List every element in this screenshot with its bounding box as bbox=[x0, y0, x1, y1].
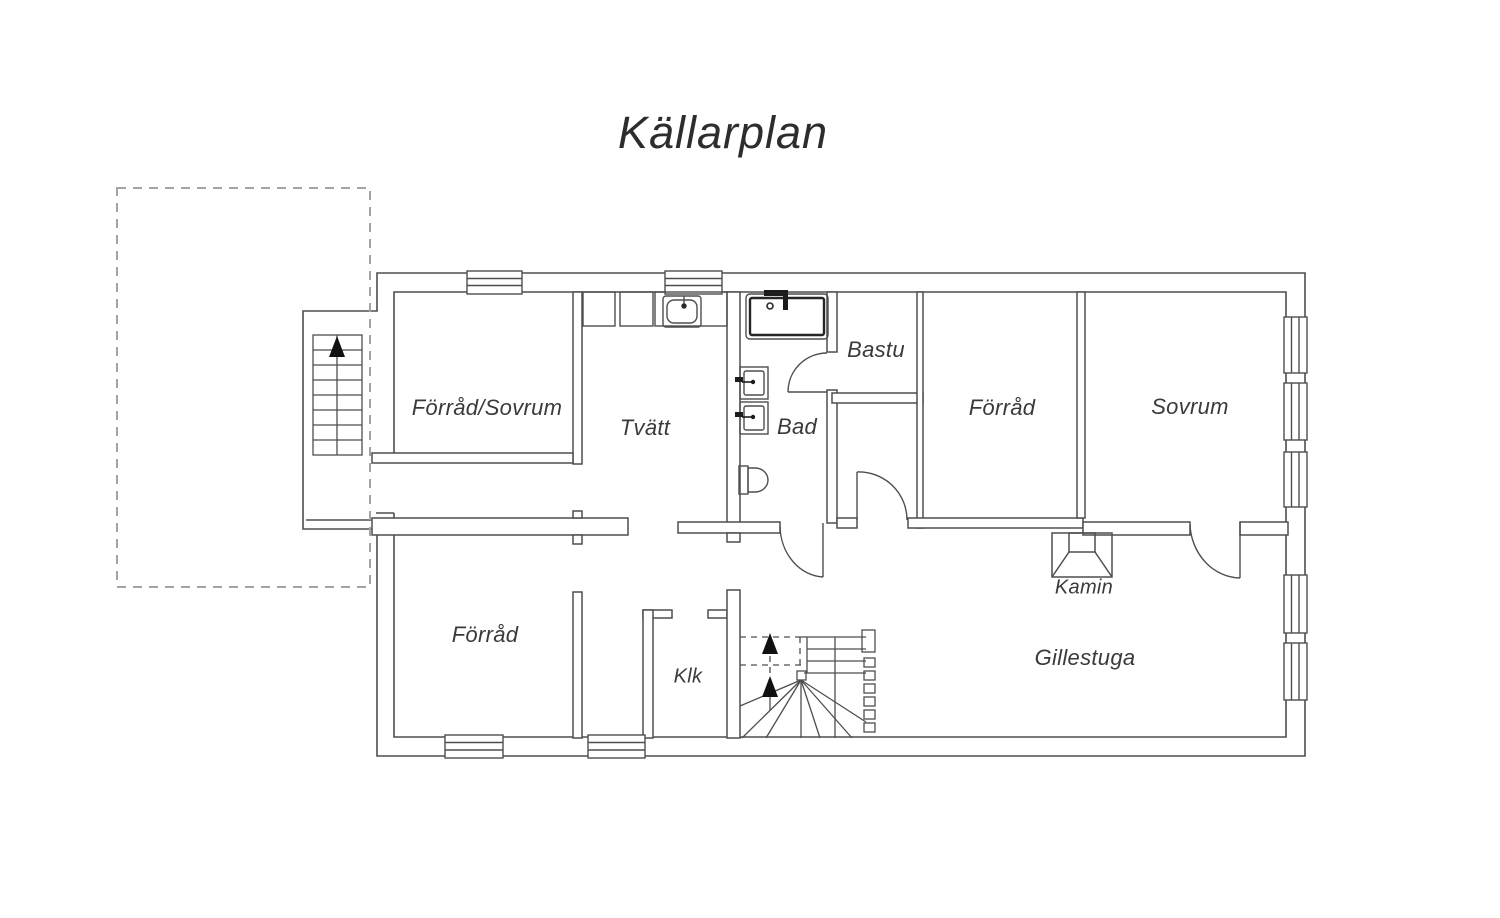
interior-walls bbox=[372, 292, 1288, 738]
washbasin-icon bbox=[735, 367, 768, 399]
laundry-fixtures bbox=[583, 292, 727, 327]
window-right-1 bbox=[1284, 317, 1307, 373]
doors bbox=[780, 353, 1240, 578]
window-top-1 bbox=[467, 271, 522, 294]
window-right-5 bbox=[1284, 643, 1307, 700]
cabinet bbox=[583, 292, 615, 326]
bathtub-icon bbox=[746, 290, 828, 339]
room-label-tvatt: Tvätt bbox=[620, 415, 670, 441]
west-wall-opening bbox=[375, 463, 395, 513]
window-right-2 bbox=[1284, 383, 1307, 440]
room-label-gillestuga: Gillestuga bbox=[1035, 645, 1136, 671]
stair-open-side-comb bbox=[862, 630, 875, 732]
stairs-up-arrow-icon bbox=[762, 676, 778, 697]
room-label-bastu: Bastu bbox=[847, 337, 905, 363]
floorplan-page: Källarplan Förråd/Sovrum Tvätt Bad Bastu… bbox=[0, 0, 1500, 918]
plan-title: Källarplan bbox=[618, 107, 828, 159]
stairs-up-arrow-icon bbox=[762, 633, 778, 654]
fireplace-icon bbox=[1052, 533, 1112, 577]
door-bastu bbox=[788, 353, 827, 392]
room-label-kamin: Kamin bbox=[1055, 577, 1113, 600]
door-sovrum bbox=[1190, 522, 1240, 578]
window-bottom-2 bbox=[588, 735, 645, 758]
room-label-klk: Klk bbox=[674, 666, 703, 689]
room-label-sovrum: Sovrum bbox=[1151, 394, 1229, 420]
window-top-2 bbox=[665, 271, 722, 294]
door-stairhall bbox=[857, 472, 907, 520]
washbasin-icon bbox=[735, 402, 768, 434]
room-label-bad: Bad bbox=[777, 414, 817, 440]
winder-treads bbox=[740, 680, 866, 738]
counter bbox=[655, 292, 727, 326]
window-right-4 bbox=[1284, 575, 1307, 633]
cabinet bbox=[620, 292, 653, 326]
room-label-forrad-top: Förråd bbox=[969, 395, 1036, 421]
room-label-forrad-sovrum: Förråd/Sovrum bbox=[412, 395, 563, 421]
room-label-forrad-bottom: Förråd bbox=[452, 622, 519, 648]
sink-icon bbox=[663, 296, 701, 327]
toilet-icon bbox=[739, 466, 768, 494]
window-right-3 bbox=[1284, 452, 1307, 507]
window-bottom-1 bbox=[445, 735, 503, 758]
main-staircase bbox=[740, 630, 875, 738]
door-bad bbox=[780, 523, 823, 577]
